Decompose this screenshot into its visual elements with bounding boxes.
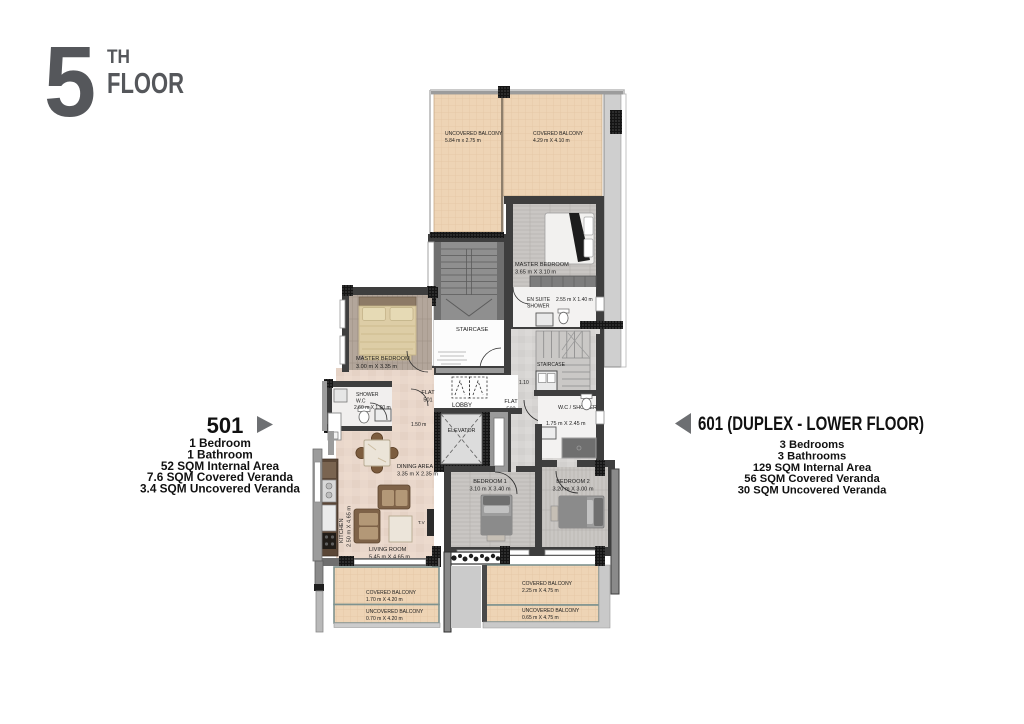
svg-text:3 Bathrooms: 3 Bathrooms: [778, 450, 846, 462]
svg-text:1.50 m: 1.50 m: [411, 422, 426, 428]
svg-text:5.84 m x 2.75 m: 5.84 m x 2.75 m: [445, 138, 481, 144]
svg-text:1.10: 1.10: [519, 380, 529, 386]
svg-text:SHOWER: SHOWER: [527, 304, 550, 310]
svg-text:TH: TH: [107, 47, 130, 68]
svg-text:STAIRCASE: STAIRCASE: [456, 327, 489, 333]
svg-text:4.29 m X 4.10 m: 4.29 m X 4.10 m: [533, 138, 570, 144]
svg-text:2.25 m X 4.75 m: 2.25 m X 4.75 m: [522, 588, 559, 594]
svg-text:UNCOVERED BALCONY: UNCOVERED BALCONY: [366, 609, 424, 615]
svg-text:3 Bedrooms: 3 Bedrooms: [780, 439, 845, 451]
svg-text:COVERED BALCONY: COVERED BALCONY: [522, 581, 573, 587]
svg-text:FLAT: FLAT: [504, 399, 518, 405]
svg-text:T.V: T.V: [418, 520, 426, 525]
svg-text:FLAT: FLAT: [421, 390, 435, 396]
svg-text:3.20 m X 3.00 m: 3.20 m X 3.00 m: [552, 487, 593, 493]
svg-text:30 SQM Uncovered Veranda: 30 SQM Uncovered Veranda: [738, 485, 887, 497]
svg-text:COVERED BALCONY: COVERED BALCONY: [366, 590, 417, 596]
svg-text:0.65 m X 4.75 m: 0.65 m X 4.75 m: [522, 615, 559, 621]
svg-text:UNCOVERED BALCONY: UNCOVERED BALCONY: [445, 131, 503, 137]
svg-text:2.55 m X 1.40 m: 2.55 m X 1.40 m: [556, 297, 593, 303]
svg-text:UNCOVERED BALCONY: UNCOVERED BALCONY: [522, 608, 580, 614]
svg-text:FLOOR: FLOOR: [107, 68, 184, 100]
svg-text:MASTER BEDROOM: MASTER BEDROOM: [515, 262, 569, 268]
svg-text:56 SQM Covered Veranda: 56 SQM Covered Veranda: [744, 473, 880, 485]
svg-text:129 SQM Internal Area: 129 SQM Internal Area: [753, 462, 872, 474]
svg-text:EN SUITE: EN SUITE: [527, 297, 551, 303]
svg-text:3.65 m X 3.10 m: 3.65 m X 3.10 m: [515, 270, 556, 276]
svg-text:0.70 m X 4.20 m: 0.70 m X 4.20 m: [366, 616, 403, 622]
svg-text:2.50 m X 4.65 m: 2.50 m X 4.65 m: [347, 506, 353, 547]
svg-text:1.70 m X 4.20 m: 1.70 m X 4.20 m: [366, 597, 403, 603]
svg-text:BEDROOM 2: BEDROOM 2: [556, 479, 590, 485]
svg-text:COVERED BALCONY: COVERED BALCONY: [533, 131, 584, 137]
svg-text:KITCHEN: KITCHEN: [339, 518, 345, 543]
svg-text:STAIRCASE: STAIRCASE: [537, 362, 566, 368]
svg-text:MASTER BEDROOM: MASTER BEDROOM: [356, 356, 410, 362]
svg-text:3.35 m X 2.35 m: 3.35 m X 2.35 m: [397, 472, 438, 478]
svg-text:LIVING ROOM: LIVING ROOM: [369, 547, 407, 553]
svg-text:501: 501: [423, 398, 432, 404]
svg-text:3.10 m X 3.40 m: 3.10 m X 3.40 m: [469, 487, 510, 493]
svg-text:2.60 m X 1.60 m: 2.60 m X 1.60 m: [354, 405, 391, 411]
svg-text:601 (DUPLEX - LOWER FLOOR): 601 (DUPLEX - LOWER FLOOR): [698, 414, 924, 435]
svg-text:SHOWER: SHOWER: [356, 392, 379, 398]
svg-text:3.4 SQM Uncovered Veranda: 3.4 SQM Uncovered Veranda: [140, 482, 300, 496]
svg-text:ELEVATOR: ELEVATOR: [448, 428, 476, 434]
svg-text:3.00 m X 3.35 m: 3.00 m X 3.35 m: [356, 364, 397, 370]
svg-text:1.75 m X 2.45 m: 1.75 m X 2.45 m: [546, 421, 586, 427]
svg-text:DINING AREA: DINING AREA: [397, 464, 433, 470]
svg-text:501: 501: [207, 413, 244, 438]
svg-text:5: 5: [44, 26, 96, 138]
svg-text:W.C: W.C: [356, 399, 366, 405]
svg-text:BEDROOM 1: BEDROOM 1: [473, 479, 507, 485]
